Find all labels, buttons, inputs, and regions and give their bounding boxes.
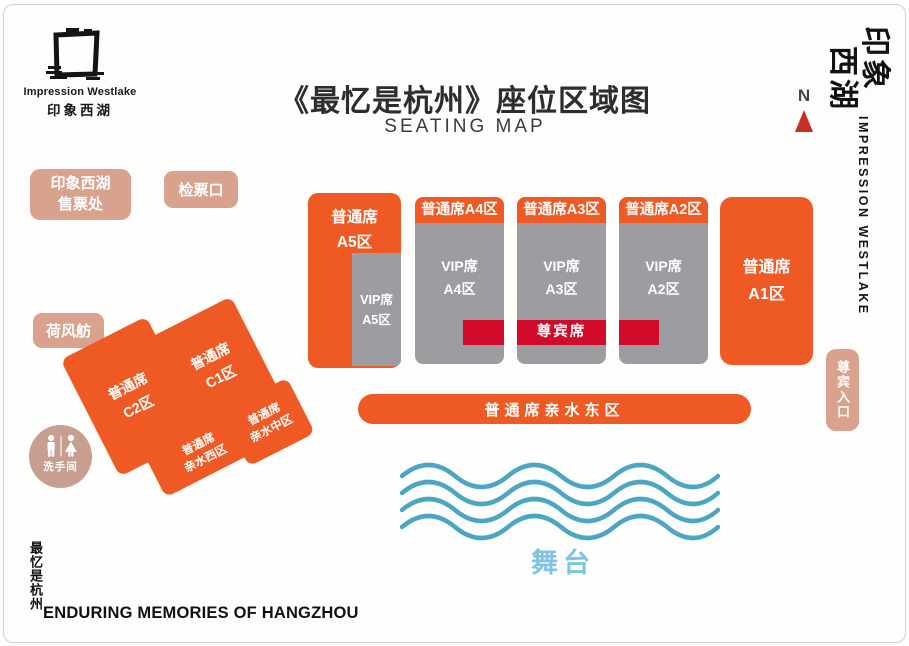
ticket-office-box: 印象西湖 售票处 bbox=[30, 169, 131, 220]
ticket-office-line1: 印象西湖 bbox=[30, 173, 131, 194]
zone-a3-vip-line2: A3区 bbox=[517, 278, 606, 301]
zone-column-a2: 普通席A2区 VIP席 A2区 bbox=[619, 197, 708, 364]
zone-a4-vip-label: VIP席 A4区 bbox=[415, 255, 504, 301]
vip-entrance-label: 尊宾入口 bbox=[833, 360, 852, 420]
zone-a4-vip-line1: VIP席 bbox=[415, 255, 504, 278]
zone-a1-line2: A1区 bbox=[748, 281, 784, 308]
page-title: 《最忆是杭州》座位区域图 bbox=[240, 76, 690, 120]
zone-a5-line1: 普通席 bbox=[308, 205, 401, 230]
zone-a4-regular[interactable]: 普通席A4区 bbox=[415, 197, 504, 223]
zone-a2-vip-line1: VIP席 bbox=[619, 255, 708, 278]
zone-a2-premium-band[interactable] bbox=[619, 320, 659, 345]
zone-a5-vip-line2: A5区 bbox=[362, 310, 390, 330]
water-waves-icon bbox=[400, 462, 720, 547]
impression-westlake-vertical-label: IMPRESSION WESTLAKE bbox=[856, 116, 870, 366]
zone-a5-vip-line1: VIP席 bbox=[360, 290, 393, 310]
zone-a2-vip[interactable]: VIP席 A2区 bbox=[619, 223, 708, 364]
zone-east-waterfront[interactable]: 普通席亲水东区 bbox=[358, 394, 751, 424]
zone-a4-premium-band[interactable] bbox=[463, 320, 504, 345]
zone-column-a3: 普通席A3区 VIP席 A3区 尊宾席 bbox=[517, 197, 606, 364]
stylized-line2: 西湖 bbox=[826, 26, 858, 130]
hefengfang-label: 荷风舫 bbox=[46, 320, 91, 341]
male-icon bbox=[47, 435, 54, 457]
stage-label: 舞台 bbox=[460, 541, 666, 580]
ticket-office-line2: 售票处 bbox=[30, 194, 131, 215]
zone-a2-vip-label: VIP席 A2区 bbox=[619, 255, 708, 301]
brand-name-cn: 印象西湖 bbox=[10, 99, 150, 119]
brand-logo-icon bbox=[46, 24, 106, 84]
zone-a4-vip[interactable]: VIP席 A4区 bbox=[415, 223, 504, 364]
zone-a4-vip-line2: A4区 bbox=[415, 278, 504, 301]
zone-column-a4: 普通席A4区 VIP席 A4区 bbox=[415, 197, 504, 364]
restroom-figures-icon bbox=[43, 434, 79, 458]
zone-a5-vip[interactable]: VIP席 A5区 bbox=[352, 253, 401, 366]
seating-map-page: Impression Westlake 印象西湖 《最忆是杭州》座位区域图 SE… bbox=[0, 0, 909, 646]
vip-entrance-box: 尊宾入口 bbox=[826, 349, 859, 431]
zone-a5-regular-label: 普通席 A5区 bbox=[308, 205, 401, 255]
page-subtitle: SEATING MAP bbox=[240, 116, 690, 138]
check-gate-box: 检票口 bbox=[164, 171, 238, 208]
zone-a3-vip-label: VIP席 A3区 bbox=[517, 255, 606, 301]
female-icon bbox=[65, 435, 77, 457]
zone-a1-line1: 普通席 bbox=[742, 254, 790, 281]
check-gate-label: 检票口 bbox=[178, 179, 223, 200]
zone-a2-regular[interactable]: 普通席A2区 bbox=[619, 197, 708, 223]
zone-a2-vip-line2: A2区 bbox=[619, 278, 708, 301]
zone-a3-premium-band[interactable]: 尊宾席 bbox=[517, 320, 606, 345]
zone-a3-vip-line1: VIP席 bbox=[517, 255, 606, 278]
restroom-label: 洗手间 bbox=[29, 459, 92, 474]
zone-a1-regular[interactable]: 普通席 A1区 bbox=[720, 197, 813, 365]
divider-line bbox=[60, 436, 61, 457]
brand-name: Impression Westlake bbox=[10, 86, 150, 98]
brand-logo-stylized: 印象 西湖 bbox=[786, 26, 890, 130]
zone-a5-line2: A5区 bbox=[308, 230, 401, 255]
stylized-line1: 印象 bbox=[858, 26, 891, 92]
zone-east-label: 普通席亲水东区 bbox=[484, 399, 624, 420]
zone-a3-regular[interactable]: 普通席A3区 bbox=[517, 197, 606, 223]
zone-a3-vip[interactable]: VIP席 A3区 尊宾席 bbox=[517, 223, 606, 364]
restroom-badge: 洗手间 bbox=[29, 425, 92, 488]
footer-title-english: ENDURING MEMORIES OF HANGZHOU bbox=[43, 604, 359, 623]
